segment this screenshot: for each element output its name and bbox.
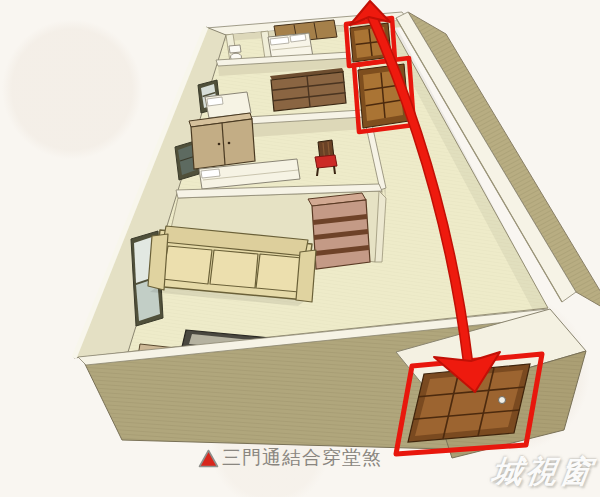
floorplan-illustration (0, 0, 600, 497)
drawer-chest (308, 193, 370, 269)
floorplan-svg (0, 0, 600, 497)
red-triangle-marker (198, 449, 219, 468)
watermark-logo: 城視窗 (489, 451, 597, 493)
sofa-armrest-left (148, 234, 168, 290)
caption-text: 三門通結合穿堂煞 (222, 447, 382, 469)
door-knob (499, 397, 506, 404)
sofa (148, 226, 316, 306)
caption: 三門通結合穿堂煞 (198, 447, 382, 469)
wardrobe (189, 113, 255, 169)
sofa-armrest-right (296, 250, 316, 302)
